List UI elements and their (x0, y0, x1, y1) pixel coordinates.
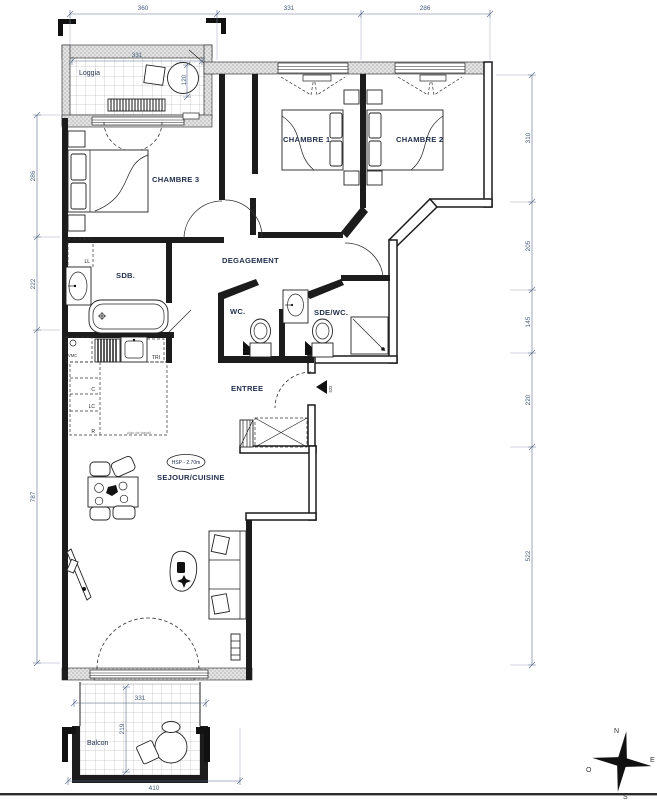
tv-stand (67, 549, 91, 600)
door-leaf-sdb (169, 310, 191, 332)
dim-top-1: 360 (138, 5, 149, 12)
dim-left-3: 787 (30, 491, 37, 502)
fixtures (66, 239, 388, 447)
room-label-sejour: SEJOUR/CUISINE (157, 473, 225, 482)
dim-balcony-width-label: 331 (135, 695, 146, 702)
dim-right-2: 205 (525, 240, 532, 251)
door-arc-chambre2 (345, 243, 383, 276)
dim-right-4: 220 (525, 394, 532, 405)
kitchen-radiator (95, 339, 120, 362)
compass-north: N (614, 728, 619, 735)
window-chambre2 (395, 63, 465, 73)
compass-east: E (650, 757, 655, 764)
dim-loggia-width-label: 331 (132, 52, 143, 59)
door-arc-chambre3 (184, 201, 222, 239)
dim-right-1: 310 (525, 132, 532, 143)
kitchen-sink (121, 337, 147, 362)
dim-loggia-depth-label: 120 (181, 74, 188, 85)
door-arc-entree (275, 372, 311, 408)
loggia-radiator (108, 99, 165, 111)
dining-table (88, 455, 138, 520)
coffee-table (170, 551, 197, 591)
compass-rose: N E O S (586, 727, 656, 800)
toilet-wc (250, 319, 271, 357)
room-label-sdb: SDB. (116, 271, 135, 280)
toilet-sdewc (312, 319, 333, 357)
bathtub (89, 300, 168, 333)
entree-closet (255, 418, 307, 447)
door-arcs-balcon (97, 618, 199, 669)
room-label-chambre2: CHAMBRE 2 (396, 135, 443, 144)
label-c: C (91, 387, 95, 393)
dim-left-2: 222 (30, 278, 37, 289)
label-r: R (91, 429, 95, 435)
label-worktop: plan de travail (127, 431, 151, 435)
hsp-ellipse: HSP - 2.70m (167, 455, 205, 470)
kitchen-counter (70, 362, 167, 435)
washbasin-wc (283, 290, 308, 323)
room-label-sdewc: SDE/WC. (314, 308, 348, 317)
bed-chambre3 (68, 131, 148, 231)
furniture-living (67, 455, 246, 660)
room-label-chambre3: CHAMBRE 3 (152, 175, 199, 184)
vmc-unit (66, 337, 92, 362)
label-vmc: VMC (68, 353, 77, 358)
hsp-label: HSP - 2.70m (172, 460, 201, 466)
door-arc-chambre1 (225, 200, 262, 237)
dim-top-3: 286 (420, 5, 431, 12)
label-tri: TRI (152, 355, 160, 361)
dim-balcony-total-label: 410 (149, 785, 160, 792)
room-label-entree: ENTREE (231, 384, 263, 393)
window-chambre1 (278, 63, 348, 73)
dim-chain-right (528, 72, 536, 668)
room-label-loggia: Loggia (79, 70, 100, 77)
dim-balcony-depth-label: 219 (119, 723, 126, 734)
entry-tag: 522 (328, 385, 333, 393)
room-label-balcon: Balcon (87, 740, 109, 747)
dim-chain-left (33, 112, 41, 666)
floor-plan-page: 522 (0, 0, 657, 800)
entree-radiator (240, 420, 253, 447)
entry-arrow: 522 (316, 380, 333, 394)
label-ll: LL (84, 259, 90, 265)
room-label-degagement: DEGAGEMENT (222, 256, 279, 265)
dim-left-1: 286 (30, 170, 37, 181)
window-chambre3 (92, 117, 184, 125)
floor-plan-svg: 522 (0, 0, 657, 800)
sejour-radiator (231, 634, 240, 660)
window-sejour (90, 670, 208, 678)
page-border (0, 793, 657, 795)
shower (351, 317, 388, 354)
compass-west: O (586, 767, 592, 774)
dim-right-3: 145 (525, 316, 532, 327)
room-label-chambre1: CHAMBRE 1 (283, 135, 331, 144)
label-lc: LC (89, 404, 96, 410)
dim-right-5: 522 (525, 550, 532, 561)
room-label-wc: WC. (230, 307, 246, 316)
sofa (209, 531, 246, 619)
loggia-side-table (144, 65, 165, 85)
washbasin-sdb (66, 267, 91, 305)
dim-top-2: 331 (284, 5, 295, 12)
